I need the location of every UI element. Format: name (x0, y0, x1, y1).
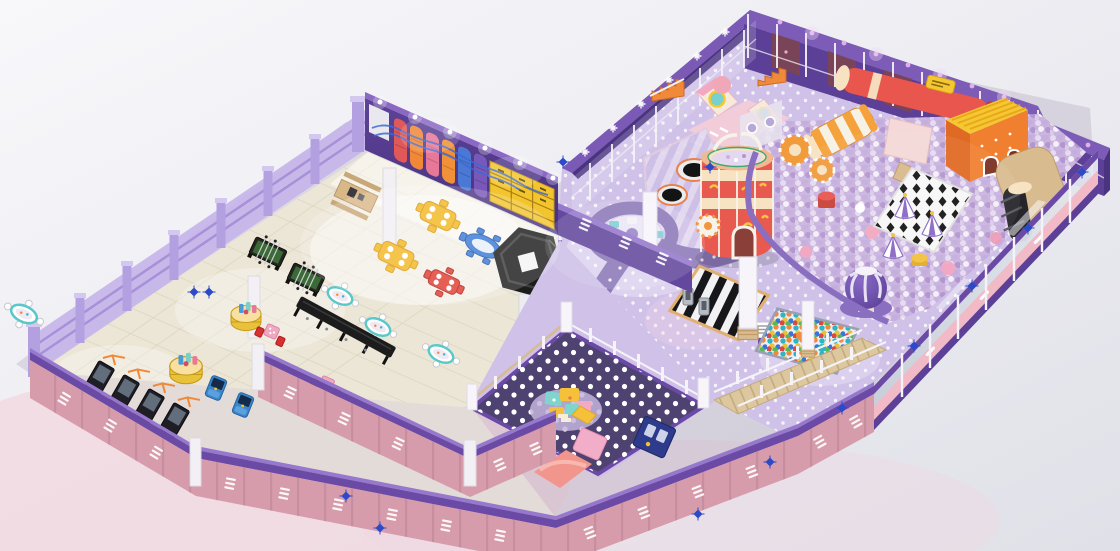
playground-render (0, 0, 1120, 551)
white-column (738, 257, 758, 340)
red-banana-tower (695, 134, 779, 268)
scene-svg (0, 0, 1120, 551)
wall-bend-post (190, 438, 201, 486)
tower-arch-door (733, 227, 755, 258)
wall-junction-post (464, 440, 476, 486)
pink-ball-large (713, 76, 731, 94)
trampoline (657, 185, 687, 205)
white-column (801, 301, 815, 357)
tower-gear-decor (697, 215, 719, 237)
wall-junction-post (252, 344, 264, 390)
red-drum-toy (818, 192, 835, 209)
yellow-stool (912, 254, 928, 267)
